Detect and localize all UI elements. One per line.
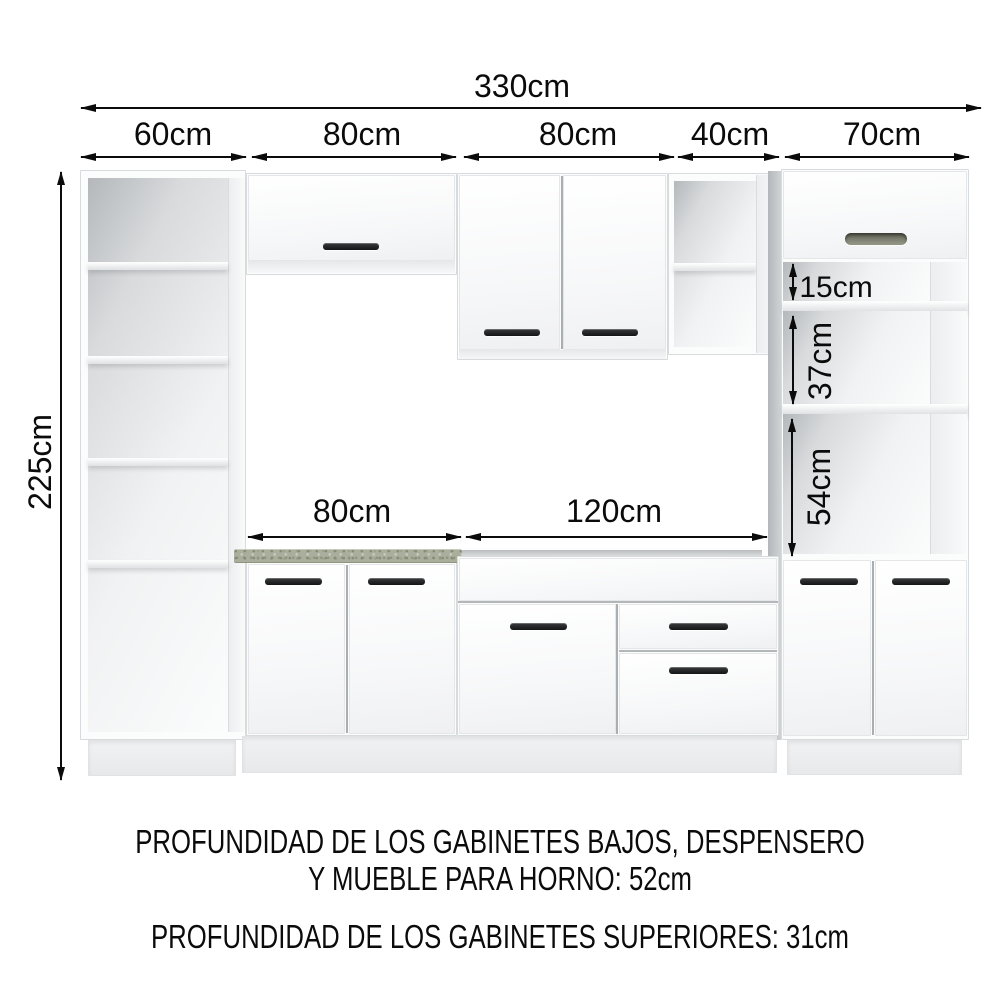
oven-tower-bottom-left-door <box>783 560 871 736</box>
dim-segment-60-label: 60cm <box>134 116 212 152</box>
base-120-door-handle <box>510 623 567 630</box>
dim-54-arrow <box>791 419 793 556</box>
dim-height-arrow <box>60 172 62 780</box>
base-120-drawer-seam <box>619 650 777 652</box>
dim-segment-80b-arrow <box>464 156 674 158</box>
dim-total-width-label: 330cm <box>474 68 570 104</box>
upper-cabinet-left-door <box>459 175 560 350</box>
pantry-right-side-panel <box>228 178 245 732</box>
oven-tower-right-band-2 <box>930 311 967 404</box>
dim-37-label: 37cm <box>803 322 837 400</box>
base-run-plinth <box>242 736 777 773</box>
pantry-shelf-2 <box>88 356 228 364</box>
oven-tower-bottom-right-door <box>875 560 967 736</box>
note-depth-upper: PROFUNDIDAD DE LOS GABINETES SUPERIORES:… <box>110 918 890 955</box>
base-80-right-door <box>349 564 455 734</box>
dim-15-label: 15cm <box>799 270 872 306</box>
upper-cabinet-right-handle <box>582 329 638 336</box>
dim-segment-80a-arrow <box>252 156 456 158</box>
upper-cabinet-left-handle <box>484 329 540 336</box>
dim-base-80-arrow <box>248 536 461 538</box>
base-120-door-drawer-seam <box>616 604 618 734</box>
dim-segment-70-arrow <box>785 156 969 158</box>
oven-tower-right-band-1 <box>930 262 967 301</box>
countertop <box>234 549 462 562</box>
dim-15-arrow <box>792 264 794 300</box>
base-120-top-seam <box>458 601 778 603</box>
oven-tower-plinth <box>787 740 962 775</box>
oven-tower-top-door <box>783 171 967 259</box>
oven-tower-bottom-left-handle <box>800 578 858 585</box>
upper-cabinet-door-seam <box>561 176 563 349</box>
dim-segment-40-arrow <box>678 156 779 158</box>
dim-segment-70-label: 70cm <box>843 116 921 152</box>
dim-54-label: 54cm <box>802 448 836 526</box>
upper-cabinet-flip-handle <box>323 243 379 250</box>
pantry-shelf-3 <box>88 458 228 466</box>
pantry-shelf-4 <box>88 560 228 568</box>
base-80-right-handle <box>368 578 425 585</box>
base-120-top-panel <box>459 558 777 601</box>
oven-tower-shelf-2 <box>783 404 967 414</box>
upper-cabinet-underside <box>459 350 666 359</box>
open-shelf-shelf <box>674 263 756 271</box>
oven-tower-right-band-3 <box>930 414 967 554</box>
base-80-door-seam <box>346 565 348 733</box>
dim-37-arrow <box>792 316 794 404</box>
upper-cabinet-right-door <box>563 175 666 350</box>
base-120-drawer-2-handle <box>669 667 728 674</box>
dim-base-120-arrow <box>466 536 767 538</box>
oven-tower-door-seam <box>872 561 874 735</box>
dim-segment-80b-label: 80cm <box>539 116 617 152</box>
upper-cabinet-flip-underside <box>248 261 455 273</box>
pantry-plinth <box>88 740 236 776</box>
note-depth-base-line1: PROFUNDIDAD DE LOS GABINETES BAJOS, DESP… <box>110 823 890 860</box>
dim-segment-40-label: 40cm <box>691 116 769 152</box>
base-120-drawer-2 <box>619 653 777 734</box>
base-80-left-handle <box>265 578 322 585</box>
base-120-drawer-1-handle <box>669 623 728 630</box>
dim-base-80-label: 80cm <box>313 493 391 529</box>
dim-base-120-label: 120cm <box>566 493 662 529</box>
note-depth-base-line2: Y MUEBLE PARA HORNO: 52cm <box>110 860 890 897</box>
dim-total-width-arrow <box>81 107 981 109</box>
kitchen-dimension-diagram: 330cm 60cm 80cm 80cm 40cm 70cm 225cm <box>0 0 1000 1000</box>
oven-tower-bottom-right-handle <box>892 578 950 585</box>
pantry-shelf-1 <box>88 262 228 270</box>
dim-segment-80a-label: 80cm <box>323 116 401 152</box>
dim-height-label: 225cm <box>23 414 57 510</box>
base-80-left-door <box>248 564 345 734</box>
dim-segment-60-arrow <box>81 156 246 158</box>
oven-tower-top-door-handle <box>845 233 907 245</box>
